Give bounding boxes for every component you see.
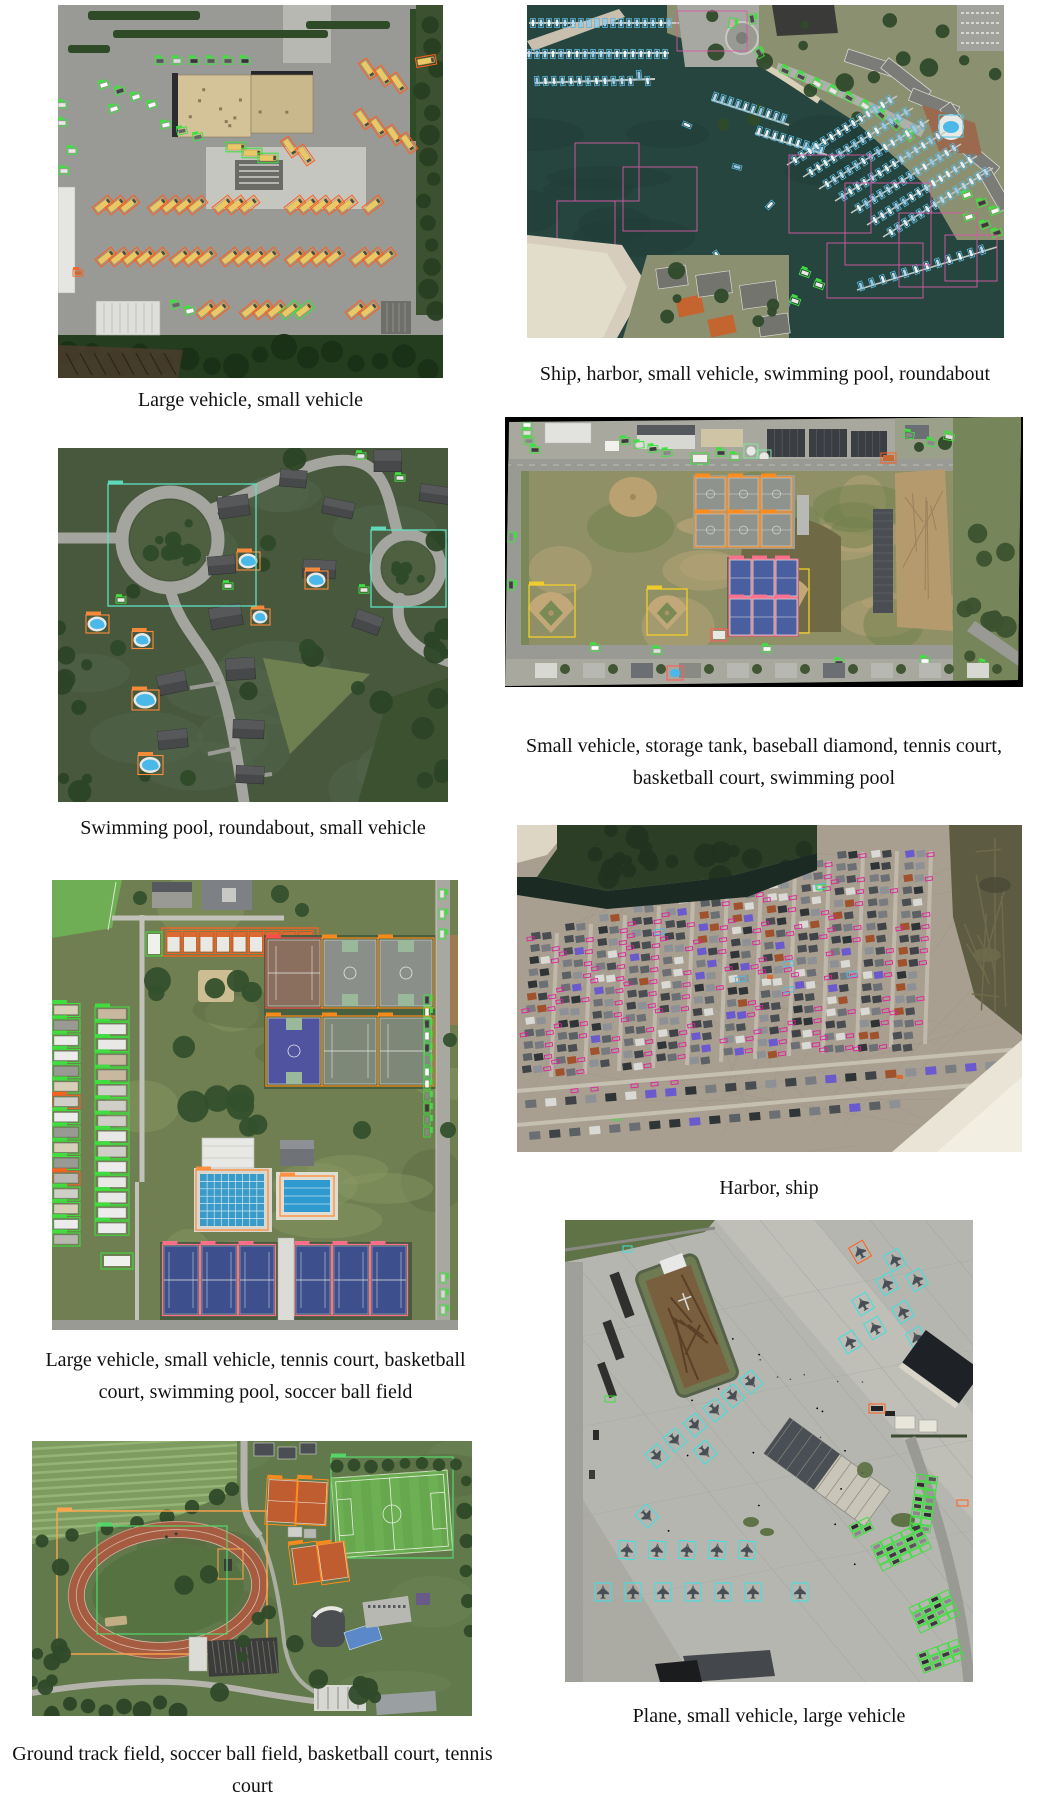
shape (772, 5, 838, 36)
shape (565, 1262, 583, 1682)
shape (52, 1558, 69, 1575)
shape (976, 551, 992, 567)
shape (691, 1399, 693, 1401)
shape (693, 455, 707, 462)
shape (694, 843, 718, 867)
shape (223, 353, 249, 378)
shape (428, 688, 448, 709)
shape (630, 494, 636, 500)
shape (368, 1605, 371, 1608)
shape (728, 845, 740, 857)
shape (840, 1488, 842, 1490)
panel-marina (527, 5, 1004, 338)
shape (295, 903, 309, 917)
shape (251, 71, 313, 75)
shape (790, 1378, 792, 1380)
shape (857, 1462, 873, 1478)
shape (98, 1177, 126, 1187)
shape (423, 258, 441, 276)
shape (631, 663, 653, 678)
shape (373, 1605, 376, 1608)
shape (758, 1354, 760, 1356)
shape (420, 215, 436, 231)
shape (803, 1374, 805, 1376)
shape (403, 1605, 406, 1608)
caption-airport: Plane, small vehicle, large vehicle (519, 1700, 1019, 1732)
shape (330, 1460, 343, 1473)
shape (285, 111, 288, 114)
shape (416, 1457, 428, 1469)
shape (823, 663, 845, 678)
shape (382, 1459, 395, 1472)
shape (639, 850, 657, 868)
shape (54, 1189, 78, 1198)
shape (957, 5, 1004, 51)
shape (222, 888, 236, 902)
shape (237, 1635, 250, 1648)
shape (297, 346, 319, 368)
shape (897, 1075, 903, 1079)
shape (967, 663, 989, 678)
shape (52, 1320, 458, 1330)
shape (98, 1055, 126, 1065)
panel-residential (58, 448, 448, 802)
shape (113, 30, 328, 38)
photo (505, 417, 1023, 687)
shape (798, 41, 808, 51)
shape (450, 1459, 462, 1471)
shape (167, 932, 180, 937)
shape (416, 194, 431, 209)
shape (687, 1455, 689, 1457)
shape (321, 341, 343, 363)
shape (412, 717, 435, 740)
shape (288, 1527, 302, 1537)
shape (104, 1256, 130, 1266)
shape (259, 110, 262, 113)
shape (419, 148, 438, 167)
shape (758, 1505, 760, 1507)
shape (152, 882, 192, 892)
shape (148, 985, 164, 1001)
shape (701, 429, 743, 447)
shape (388, 1605, 391, 1608)
shape (529, 546, 592, 594)
panel-beach-harbor (517, 825, 1022, 1152)
shape (271, 334, 297, 360)
shape (965, 597, 982, 614)
shape (423, 38, 441, 56)
shape (68, 45, 110, 53)
caption-marina: Ship, harbor, small vehicle, swimming po… (465, 358, 1064, 390)
shape (450, 935, 458, 1025)
shape (767, 975, 773, 979)
shape (885, 1411, 895, 1416)
shape (54, 1051, 78, 1060)
shape (237, 1652, 248, 1663)
shape (173, 1036, 195, 1058)
shape (203, 357, 221, 375)
shape (353, 1676, 368, 1691)
shape (718, 1388, 720, 1390)
caption-track-field: Ground track field, soccer ball field, b… (0, 1738, 505, 1803)
shape (54, 1021, 78, 1030)
shape (433, 1459, 446, 1472)
shape (337, 1173, 433, 1204)
shape (752, 315, 764, 327)
shape (752, 1452, 754, 1454)
shape (583, 663, 605, 678)
shape (896, 664, 906, 674)
panel-sports-complex (52, 880, 458, 1330)
shape (198, 99, 201, 102)
shape (381, 301, 411, 334)
shape (286, 1635, 303, 1652)
shape (854, 1563, 856, 1565)
shape (54, 1036, 78, 1045)
shape (717, 118, 729, 130)
aerial-image-sports-complex (52, 880, 458, 1330)
shape (996, 543, 1015, 562)
shape (351, 681, 365, 695)
shape (398, 1605, 401, 1608)
shape (398, 940, 414, 952)
shape (165, 532, 181, 548)
shape (252, 1612, 265, 1625)
shape (443, 1033, 457, 1047)
shape (37, 1679, 53, 1695)
shape (251, 75, 313, 133)
shape (252, 346, 268, 362)
shape (871, 663, 893, 678)
shape (209, 1489, 225, 1505)
shape (98, 1162, 126, 1172)
shape (816, 1407, 818, 1409)
shape (58, 773, 69, 784)
shape (914, 442, 924, 452)
shape (210, 1683, 229, 1702)
shape (143, 545, 159, 561)
shape (834, 1523, 836, 1525)
shape (247, 560, 255, 566)
shape (81, 659, 92, 670)
shape (98, 1040, 126, 1050)
shape (219, 107, 222, 110)
shape (153, 1696, 167, 1710)
shape (668, 1530, 670, 1532)
shape (347, 355, 364, 372)
shape (436, 880, 450, 1330)
shape (54, 1082, 78, 1091)
shape (777, 1376, 779, 1378)
shape (456, 1503, 472, 1520)
shape (425, 530, 447, 552)
shape (299, 639, 317, 657)
shape (304, 1529, 316, 1538)
shape (233, 116, 236, 119)
shape (98, 1070, 126, 1080)
shape (174, 1575, 193, 1594)
shape (205, 978, 225, 998)
shape (155, 536, 164, 545)
shape (706, 10, 718, 22)
shape (98, 1086, 126, 1096)
aerial-image-residential (58, 448, 448, 802)
panel-airport (565, 1220, 973, 1682)
shape (225, 1482, 239, 1496)
shape (507, 459, 521, 649)
shape (58, 187, 75, 293)
caption-school-fields: Small vehicle, storage tank, baseball di… (484, 730, 1044, 795)
shape (286, 1018, 302, 1030)
shape (589, 1470, 595, 1479)
shape (535, 663, 557, 678)
shape (396, 573, 407, 584)
shape (835, 73, 854, 92)
shape (184, 932, 197, 937)
shape (217, 932, 230, 937)
shape (424, 632, 440, 648)
panel-school-fields (505, 417, 1023, 687)
shape (895, 469, 953, 631)
shape (543, 178, 633, 201)
shape (116, 1699, 132, 1715)
shape (883, 455, 894, 461)
soccer-field (331, 1470, 452, 1558)
shape (306, 21, 390, 29)
shape (54, 1143, 78, 1152)
shape (247, 1115, 267, 1135)
shape (920, 58, 939, 77)
shape (424, 105, 441, 122)
shape (637, 425, 695, 435)
shape (184, 519, 192, 527)
shape (622, 855, 633, 866)
shape (364, 1460, 378, 1474)
shape (54, 1128, 78, 1137)
shape (714, 289, 729, 304)
shape (233, 932, 246, 937)
shape (202, 1138, 254, 1168)
shape (883, 13, 897, 27)
shape (242, 982, 262, 1002)
shape (871, 1406, 883, 1411)
shape (141, 639, 148, 644)
shape (177, 1091, 209, 1123)
shape (959, 55, 969, 65)
aerial-image-school-fields (505, 417, 1023, 687)
shape (545, 423, 591, 443)
shape (133, 891, 147, 905)
shape (54, 1113, 78, 1122)
shape (736, 32, 748, 44)
shape (393, 1605, 396, 1608)
caption-beach-harbor: Harbor, ship (519, 1172, 1019, 1204)
shape (228, 124, 231, 127)
shape (378, 1605, 381, 1608)
shape (598, 867, 620, 889)
shape (417, 575, 425, 583)
shape (81, 1699, 96, 1714)
shape (149, 763, 159, 770)
shape (309, 1669, 329, 1689)
shape (767, 307, 777, 317)
shape (96, 623, 104, 629)
shape (460, 1565, 472, 1578)
shape (868, 71, 880, 83)
shape (665, 855, 678, 868)
shape (225, 120, 228, 123)
shape (425, 238, 438, 251)
shape (831, 1456, 833, 1458)
paper-figure: Large vehicle, small vehicle Ship, harbo… (0, 0, 1064, 1819)
shape (670, 669, 680, 677)
shape (372, 353, 389, 370)
shape (36, 1535, 49, 1548)
shape (797, 495, 809, 535)
shape (980, 612, 997, 629)
shape (126, 584, 140, 598)
shape (224, 1559, 232, 1571)
aerial-image-airport (565, 1220, 973, 1682)
shape (707, 44, 724, 61)
shape (260, 535, 276, 551)
shape (278, 1447, 296, 1459)
shape (148, 934, 160, 954)
shape (746, 446, 756, 456)
shape (820, 1437, 822, 1439)
shape (278, 1238, 294, 1322)
shape (936, 24, 950, 38)
shape (416, 1593, 430, 1605)
shape (822, 1411, 824, 1413)
shape (440, 1122, 456, 1138)
shape (200, 1565, 218, 1583)
shape (713, 631, 725, 639)
shape (88, 11, 200, 20)
shape (110, 640, 126, 656)
shape (560, 664, 570, 674)
shape (280, 1140, 314, 1149)
shape (54, 1006, 78, 1015)
shape (767, 429, 805, 457)
shape (979, 877, 1011, 893)
shape (54, 1174, 78, 1183)
shape (668, 262, 685, 279)
shape (98, 1009, 126, 1019)
shape (742, 853, 752, 863)
shape (54, 1220, 78, 1229)
shape (283, 448, 307, 471)
shape (239, 682, 257, 700)
shape (98, 1131, 126, 1141)
shape (919, 1420, 937, 1432)
shape (760, 1528, 774, 1536)
shape (71, 700, 86, 715)
shape (743, 1517, 759, 1527)
shape (348, 1459, 361, 1472)
shape (848, 664, 858, 674)
shape (98, 1101, 126, 1111)
shape (605, 441, 619, 451)
shape (964, 650, 975, 661)
shape (250, 932, 263, 937)
shape (427, 172, 441, 186)
shape (626, 826, 649, 849)
shape (189, 1637, 207, 1671)
shape (679, 663, 701, 678)
shape (727, 663, 749, 678)
shape (353, 1121, 371, 1139)
shape (593, 1430, 599, 1440)
shape (226, 1092, 254, 1120)
shape (98, 1024, 126, 1034)
caption-bus-depot: Large vehicle, small vehicle (58, 384, 443, 416)
shape (704, 664, 714, 674)
aerial-image-marina (527, 5, 1004, 338)
shape (673, 294, 682, 303)
shape (992, 664, 1002, 674)
caption-sports-complex: Large vehicle, small vehicle, tennis cou… (28, 1344, 483, 1409)
shape (968, 524, 988, 544)
shape (896, 51, 911, 66)
shape (189, 115, 192, 118)
shape (54, 1097, 78, 1106)
shape (775, 663, 797, 678)
shape (185, 1500, 199, 1514)
panel-track-field (32, 1441, 472, 1716)
tennis-clay-b (292, 1542, 349, 1585)
shape (752, 664, 762, 674)
shape (54, 1067, 78, 1076)
shape (809, 429, 847, 457)
shape (422, 16, 439, 33)
shape (200, 932, 213, 937)
shape (400, 1458, 411, 1469)
shape (398, 994, 414, 1006)
shape (98, 1147, 126, 1157)
shape (144, 698, 155, 705)
shape (989, 68, 1001, 80)
shape (260, 616, 266, 621)
shape (183, 546, 201, 564)
shape (98, 1223, 126, 1233)
shape (254, 1443, 274, 1456)
shape (862, 1381, 864, 1383)
shape (973, 948, 1001, 962)
shape (419, 125, 439, 145)
shape (98, 1193, 126, 1203)
shape (413, 82, 430, 99)
shape (202, 88, 205, 91)
shape (239, 99, 242, 102)
caption-residential: Swimming pool, roundabout, small vehicle (3, 812, 503, 844)
shape (315, 579, 323, 585)
shape (180, 770, 196, 786)
shape (895, 1416, 915, 1429)
shape (588, 847, 603, 862)
shape (660, 310, 674, 324)
shape (370, 690, 393, 713)
aerial-image-track-field (32, 1441, 472, 1716)
shape (54, 1204, 78, 1213)
shape (732, 1338, 734, 1340)
shape (63, 1697, 77, 1711)
shape (844, 1450, 846, 1452)
shape (342, 994, 358, 1006)
shape (98, 1116, 126, 1126)
shape (300, 1443, 316, 1454)
